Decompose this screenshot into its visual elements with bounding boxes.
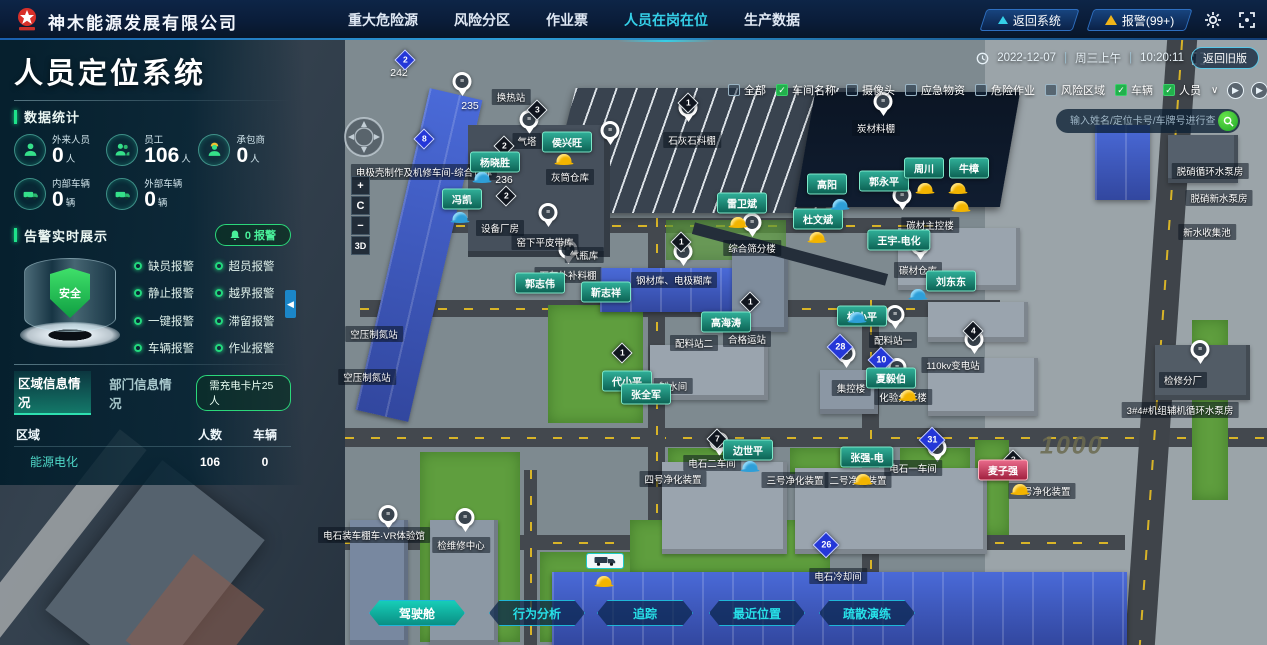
stat-0: 外来人员0人 bbox=[14, 132, 106, 167]
legend-chevron-icon[interactable]: ∨ bbox=[1211, 85, 1218, 96]
person-tag-5[interactable]: 雷卫斌 bbox=[717, 193, 767, 214]
road bbox=[345, 428, 1267, 447]
badge-number: 2 bbox=[399, 54, 412, 66]
alarms-section-header: 告警实时展示 0 报警 bbox=[14, 224, 291, 246]
company-name: 神木能源发展有限公司 bbox=[48, 9, 238, 34]
worker-helmet-yellow-icon[interactable] bbox=[1013, 484, 1028, 494]
zoom-out-button[interactable]: − bbox=[351, 216, 370, 235]
stat-value: 0 bbox=[236, 144, 248, 167]
legend-item-4[interactable]: 危险作业 bbox=[975, 82, 1035, 98]
stat-3: 内部车辆0辆 bbox=[14, 176, 106, 211]
alarm-type-label: 作业报警 bbox=[229, 340, 275, 356]
building-label-34: 脱硝循环水泵房 bbox=[1172, 163, 1249, 179]
badge-number: 1 bbox=[744, 296, 757, 308]
location-pin-icon[interactable]: ≡ bbox=[456, 508, 475, 527]
datetime-bar: 2022-12-07 | 周三上午 | 10:20:11 bbox=[976, 50, 1205, 66]
shield-label: 安全 bbox=[59, 285, 81, 301]
company-logo bbox=[14, 6, 40, 32]
legend-label: 车辆 bbox=[1131, 82, 1153, 98]
alarm-type-label: 缺员报警 bbox=[148, 258, 194, 274]
stat-unit: 辆 bbox=[66, 198, 76, 209]
nav-tab-2[interactable]: 作业票 bbox=[546, 10, 588, 30]
time-text: 10:20:11 bbox=[1140, 52, 1184, 64]
building-label-20: 110kv变电站 bbox=[921, 357, 984, 373]
table-header: 人数 bbox=[181, 423, 239, 447]
legend-checkbox[interactable] bbox=[846, 84, 858, 96]
bottom-button-2[interactable]: 追踪 bbox=[597, 600, 693, 626]
left-panel: 人员定位系统 数据统计 外来人员0人员工106人承包商0人内部车辆0辆外部车辆0… bbox=[0, 40, 305, 485]
stat-4: 外部车辆0辆 bbox=[106, 176, 198, 211]
alarm-type-label: 超员报警 bbox=[229, 258, 275, 274]
building-label-27: 四号净化装置 bbox=[639, 471, 706, 487]
person-tag-16[interactable]: 张全军 bbox=[621, 384, 671, 405]
safety-shield-graphic: 安全 bbox=[14, 252, 126, 356]
worker-helmet-yellow-icon[interactable] bbox=[951, 183, 966, 193]
alarm-dot-icon bbox=[134, 262, 142, 270]
person-tag-3[interactable]: 郭志伟 bbox=[515, 273, 565, 294]
vehicle-tag[interactable] bbox=[586, 553, 624, 569]
region-people-count: 106 bbox=[181, 447, 239, 477]
alarm-type-list: 缺员报警超员报警静止报警越界报警一键报警滞留报警车辆报警作业报警 bbox=[126, 252, 291, 356]
badge-number: 1 bbox=[675, 236, 688, 248]
building-label-8: 气瓶库 bbox=[565, 247, 604, 263]
worker-helmet-yellow-icon[interactable] bbox=[918, 183, 933, 193]
badge-number: 7 bbox=[711, 433, 724, 445]
pin-glyph: ≡ bbox=[456, 75, 469, 88]
bell-icon bbox=[230, 230, 240, 241]
legend-label: 车间名称 bbox=[792, 82, 836, 98]
location-pin-icon[interactable]: ≡ bbox=[453, 72, 472, 91]
legend-checkbox[interactable]: ✓ bbox=[1115, 84, 1127, 96]
alarm-dot-icon bbox=[215, 289, 223, 297]
legend-item-6[interactable]: ✓车辆 bbox=[1115, 82, 1153, 98]
location-pin-icon[interactable]: ≡ bbox=[1191, 340, 1210, 359]
pin-glyph: ≡ bbox=[459, 511, 472, 524]
building-label-5: 灰筒仓库 bbox=[546, 169, 594, 185]
person-tag-1[interactable]: 杨晓胜 bbox=[470, 152, 520, 173]
badge-number: 2 bbox=[498, 140, 511, 152]
alarm-dot-icon bbox=[134, 317, 142, 325]
alarm-type-label: 一键报警 bbox=[148, 313, 194, 329]
badge-number: 3 bbox=[531, 104, 544, 116]
badge-number: 10 bbox=[873, 352, 890, 368]
stats-section-header: 数据统计 bbox=[14, 107, 291, 126]
reset-view-button[interactable]: C bbox=[351, 196, 370, 215]
person-icon bbox=[14, 134, 46, 166]
person-tag-2[interactable]: 冯凯 bbox=[442, 189, 482, 210]
building-label-24: 检维修中心 bbox=[432, 537, 490, 553]
building-label-18: 集控楼 bbox=[832, 380, 871, 396]
badge-number: 26 bbox=[818, 537, 835, 553]
week-text: 周三上午 bbox=[1075, 50, 1121, 66]
zoom-in-button[interactable]: + bbox=[351, 176, 370, 195]
badge-number: 28 bbox=[832, 339, 849, 355]
alarm-count-button[interactable]: 报警(99+) bbox=[1086, 9, 1193, 31]
person-tag-4[interactable]: 靳志祥 bbox=[581, 282, 631, 303]
alarm-count-text: 0 报警 bbox=[245, 227, 276, 243]
building-label-1: 石灰石料棚 bbox=[663, 132, 721, 148]
legend-checkbox[interactable]: ✓ bbox=[1163, 84, 1175, 96]
back-old-version-button[interactable]: 返回旧版 bbox=[1191, 47, 1259, 69]
person-tag-20[interactable]: 麦子强 bbox=[978, 460, 1028, 481]
stat-value: 106 bbox=[144, 144, 179, 167]
vehicle-icon bbox=[14, 178, 46, 210]
nav-tab-3[interactable]: 人员在岗在位 bbox=[624, 10, 708, 30]
building-label-11: 综合筛分楼 bbox=[723, 240, 781, 256]
building-label-31: 电石冷却间 bbox=[809, 568, 867, 584]
alarm-type-label: 静止报警 bbox=[148, 285, 194, 301]
people-icon bbox=[106, 134, 138, 166]
legend-item-0[interactable]: 全部 bbox=[728, 82, 766, 98]
alarm-dot-icon bbox=[215, 317, 223, 325]
nav-tab-4[interactable]: 生产数据 bbox=[744, 10, 800, 30]
legend-label: 人员 bbox=[1179, 82, 1201, 98]
info-tabs: 区域信息情况部门信息情况需充电卡片25人 bbox=[14, 371, 291, 415]
grass bbox=[548, 305, 643, 423]
building-label-10: 钢材库、电极糊库 bbox=[631, 272, 717, 288]
alarm-type-label: 越界报警 bbox=[229, 285, 275, 301]
person-tag-0[interactable]: 侯兴旺 bbox=[542, 132, 592, 153]
clock-icon bbox=[976, 52, 989, 65]
page-title: 人员定位系统 bbox=[14, 50, 291, 92]
person-tag-18[interactable]: 边世平 bbox=[723, 440, 773, 461]
region-vehicle-count: 0 bbox=[239, 447, 291, 477]
alarm-dot-icon bbox=[134, 344, 142, 352]
person-tag-19[interactable]: 张强-电 bbox=[840, 447, 893, 468]
worker-helmet-yellow-icon[interactable] bbox=[810, 232, 825, 242]
fullscreen-icon[interactable] bbox=[1237, 10, 1257, 30]
building-label-23: 电石装车棚车·VR体验馆 bbox=[318, 527, 430, 543]
layer-legend: 全部✓车间名称摄像头应急物资危险作业风险区域✓车辆✓人员∨ bbox=[728, 82, 1218, 98]
legend-item-2[interactable]: 摄像头 bbox=[846, 82, 895, 98]
nav-tab-0[interactable]: 重大危险源 bbox=[348, 10, 418, 30]
stat-unit: 人 bbox=[250, 154, 260, 165]
ground-text-3: 1000 bbox=[1037, 432, 1107, 461]
worker-helmet-blue-icon[interactable] bbox=[850, 312, 865, 322]
bottom-button-1[interactable]: 行为分析 bbox=[489, 600, 585, 626]
stat-value: 0 bbox=[144, 188, 156, 211]
map-play-controls: ▶ ▶ bbox=[1227, 82, 1267, 99]
map-toolbar: + C − 3D bbox=[351, 176, 370, 255]
building-label-28: 三号净化装置 bbox=[761, 472, 828, 488]
building-label-16: 配料站一 bbox=[869, 332, 917, 348]
truck-icon bbox=[594, 556, 616, 566]
legend-label: 应急物资 bbox=[921, 82, 965, 98]
building-label-32: 检修分厂 bbox=[1159, 372, 1207, 388]
pin-glyph: ≡ bbox=[382, 508, 395, 521]
person-tag-7[interactable]: 高阳 bbox=[807, 174, 847, 195]
main-nav: 重大危险源风险分区作业票人员在岗在位生产数据 bbox=[348, 0, 800, 40]
date-text: 2022-12-07 bbox=[997, 52, 1056, 64]
nav-tab-1[interactable]: 风险分区 bbox=[454, 10, 510, 30]
charge-cards-pill[interactable]: 需充电卡片25人 bbox=[196, 375, 291, 411]
legend-item-1[interactable]: ✓车间名称 bbox=[776, 82, 836, 98]
location-pin-icon[interactable]: ≡ bbox=[601, 121, 620, 140]
person-tag-6[interactable]: 杜文斌 bbox=[793, 209, 843, 230]
stat-unit: 人 bbox=[66, 154, 76, 165]
stat-value: 0 bbox=[52, 144, 64, 167]
stat-unit: 辆 bbox=[158, 198, 168, 209]
pin-glyph: ≡ bbox=[746, 216, 759, 229]
table-header: 区域 bbox=[14, 423, 181, 447]
alarm-count-pill[interactable]: 0 报警 bbox=[215, 224, 291, 246]
pin-glyph: ≡ bbox=[604, 124, 617, 137]
alarm-dot-icon bbox=[215, 344, 223, 352]
alarm-type-7[interactable]: 作业报警 bbox=[215, 340, 292, 356]
stat-1: 员工106人 bbox=[106, 132, 198, 167]
legend-label: 危险作业 bbox=[991, 82, 1035, 98]
table-header: 车辆 bbox=[239, 423, 291, 447]
stat-unit: 人 bbox=[181, 154, 191, 165]
alarm-type-label: 车辆报警 bbox=[148, 340, 194, 356]
legend-label: 全部 bbox=[744, 82, 766, 98]
ground-text-2: 236 bbox=[495, 174, 513, 186]
legend-checkbox[interactable]: ✓ bbox=[776, 84, 788, 96]
app-window: 换热站石灰石料棚炭材料棚电极壳制作及机修车间-综合仓库气塔灰筒仓库设备厂房窑下平… bbox=[0, 0, 1267, 645]
person-tag-13[interactable]: 刘东东 bbox=[926, 271, 976, 292]
badge-number: 8 bbox=[418, 133, 431, 145]
building-label-35: 脱硝新水泵房 bbox=[1185, 190, 1252, 206]
blue-bldg-right bbox=[1095, 125, 1150, 200]
region-name: 能源电化 bbox=[14, 447, 181, 477]
table-row[interactable]: 能源电化1060 bbox=[14, 447, 291, 477]
search-icon bbox=[1223, 116, 1234, 127]
home-arrow-icon bbox=[998, 16, 1008, 24]
legend-checkbox[interactable] bbox=[728, 84, 740, 96]
pin-glyph: ≡ bbox=[1194, 343, 1207, 356]
worker-helmet-blue-icon[interactable] bbox=[453, 212, 468, 222]
bottom-button-3[interactable]: 最近位置 bbox=[709, 600, 805, 626]
legend-item-3[interactable]: 应急物资 bbox=[905, 82, 965, 98]
alarm-area: 安全 缺员报警超员报警静止报警越界报警一键报警滞留报警车辆报警作业报警 bbox=[14, 252, 291, 356]
badge-number: 2 bbox=[500, 190, 513, 202]
bottom-button-4[interactable]: 疏散演练 bbox=[819, 600, 915, 626]
building-label-36: 新水收集池 bbox=[1178, 224, 1236, 240]
alarm-type-2[interactable]: 静止报警 bbox=[134, 285, 211, 301]
stat-2: 承包商0人 bbox=[198, 132, 290, 167]
ground-text-1: 235 bbox=[461, 100, 479, 112]
stats-grid: 外来人员0人员工106人承包商0人内部车辆0辆外部车辆0辆 bbox=[14, 132, 291, 220]
alarm-type-5[interactable]: 滞留报警 bbox=[215, 313, 292, 329]
alarm-type-1[interactable]: 超员报警 bbox=[215, 258, 292, 274]
worker-helmet-blue-icon[interactable] bbox=[911, 289, 926, 299]
person-tag-17[interactable]: 夏毅伯 bbox=[866, 368, 916, 389]
worker-helmet-yellow-icon[interactable] bbox=[954, 201, 969, 211]
person-tag-8[interactable]: 郭永平 bbox=[859, 171, 909, 192]
badge-number: 1 bbox=[616, 347, 629, 359]
back-system-label: 返回系统 bbox=[1013, 12, 1061, 29]
contractor-icon bbox=[198, 134, 230, 166]
warning-triangle-icon bbox=[1105, 15, 1117, 25]
building-label-2: 炭材料棚 bbox=[852, 120, 900, 136]
person-tag-9[interactable]: 周川 bbox=[904, 158, 944, 179]
worker-helmet-yellow-icon[interactable] bbox=[901, 390, 916, 400]
person-tag-14[interactable]: 高海涛 bbox=[701, 312, 751, 333]
stats-section-title: 数据统计 bbox=[24, 107, 80, 126]
legend-item-5[interactable]: 风险区域 bbox=[1045, 82, 1105, 98]
region-table: 区域人数车辆 能源电化1060 bbox=[14, 423, 291, 476]
alarm-dot-icon bbox=[215, 262, 223, 270]
alarm-type-3[interactable]: 越界报警 bbox=[215, 285, 292, 301]
badge-number: 1 bbox=[682, 97, 695, 109]
mode-3d-button[interactable]: 3D bbox=[351, 236, 370, 255]
search-input[interactable] bbox=[1068, 115, 1218, 128]
building-label-14: 配料站二 bbox=[670, 335, 718, 351]
worker-helmet-yellow-icon[interactable] bbox=[731, 217, 746, 227]
rotate-play-icon[interactable]: ▶ bbox=[1227, 82, 1244, 99]
legend-checkbox[interactable] bbox=[1045, 84, 1057, 96]
info-tab-1[interactable]: 部门信息情况 bbox=[105, 372, 182, 414]
alarm-type-4[interactable]: 一键报警 bbox=[134, 313, 211, 329]
search-box bbox=[1056, 109, 1240, 133]
alarm-type-6[interactable]: 车辆报警 bbox=[134, 340, 211, 356]
building-label-15: 合格运站 bbox=[723, 331, 771, 347]
legend-checkbox[interactable] bbox=[905, 84, 917, 96]
person-tag-10[interactable]: 牛樟 bbox=[949, 158, 989, 179]
worker-helmet-blue-icon[interactable] bbox=[833, 199, 848, 209]
table-header-row: 区域人数车辆 bbox=[14, 423, 291, 447]
compass-widget[interactable] bbox=[342, 115, 386, 159]
vehicle-icon bbox=[106, 178, 138, 210]
worker-helmet-blue-icon[interactable] bbox=[743, 461, 758, 471]
building-label-21: 空压制氮站 bbox=[345, 326, 403, 342]
settings-gear-icon[interactable] bbox=[1203, 10, 1223, 30]
worker-helmet-yellow-icon[interactable] bbox=[557, 154, 572, 164]
legend-checkbox[interactable] bbox=[975, 84, 987, 96]
legend-item-7[interactable]: ✓人员 bbox=[1163, 82, 1201, 98]
location-pin-icon[interactable]: ≡ bbox=[886, 305, 905, 324]
rotate-next-icon[interactable]: ▶ bbox=[1251, 82, 1267, 99]
header-bar: 神木能源发展有限公司 重大危险源风险分区作业票人员在岗在位生产数据 返回系统 报… bbox=[0, 0, 1267, 40]
info-tab-0[interactable]: 区域信息情况 bbox=[14, 371, 91, 415]
bottom-button-0[interactable]: 驾驶舱 bbox=[369, 600, 465, 626]
legend-label: 摄像头 bbox=[862, 82, 895, 98]
back-system-button[interactable]: 返回系统 bbox=[979, 9, 1079, 31]
search-button[interactable] bbox=[1218, 111, 1238, 131]
sidebar-collapse-handle[interactable]: ◀ bbox=[285, 290, 296, 318]
worker-helmet-yellow-icon[interactable] bbox=[856, 474, 871, 484]
badge-number: 31 bbox=[924, 432, 941, 448]
worker-helmet-yellow-icon[interactable] bbox=[597, 576, 612, 586]
legend-label: 风险区域 bbox=[1061, 82, 1105, 98]
pin-glyph: ≡ bbox=[542, 206, 555, 219]
person-tag-11[interactable]: 王宇-电化 bbox=[867, 230, 930, 251]
location-pin-icon[interactable]: ≡ bbox=[379, 505, 398, 524]
worker-helmet-blue-icon[interactable] bbox=[475, 172, 490, 182]
alarm-dot-icon bbox=[134, 289, 142, 297]
location-pin-icon[interactable]: ≡ bbox=[539, 203, 558, 222]
alarm-count-label: 报警(99+) bbox=[1122, 12, 1174, 29]
building-label-22: 空压制氮站 bbox=[338, 369, 396, 385]
building-label-4: 气塔 bbox=[512, 133, 541, 149]
alarm-type-label: 滞留报警 bbox=[229, 313, 275, 329]
building-label-33: 3#4#机组辅机循环水泵房 bbox=[1122, 402, 1239, 418]
badge-number: 4 bbox=[967, 325, 980, 337]
alarm-type-0[interactable]: 缺员报警 bbox=[134, 258, 211, 274]
alarms-section-title: 告警实时展示 bbox=[24, 226, 108, 245]
stat-value: 0 bbox=[52, 188, 64, 211]
pin-glyph: ≡ bbox=[889, 308, 902, 321]
building-label-0: 换热站 bbox=[492, 89, 531, 105]
header-actions: 返回系统 报警(99+) bbox=[983, 0, 1257, 40]
